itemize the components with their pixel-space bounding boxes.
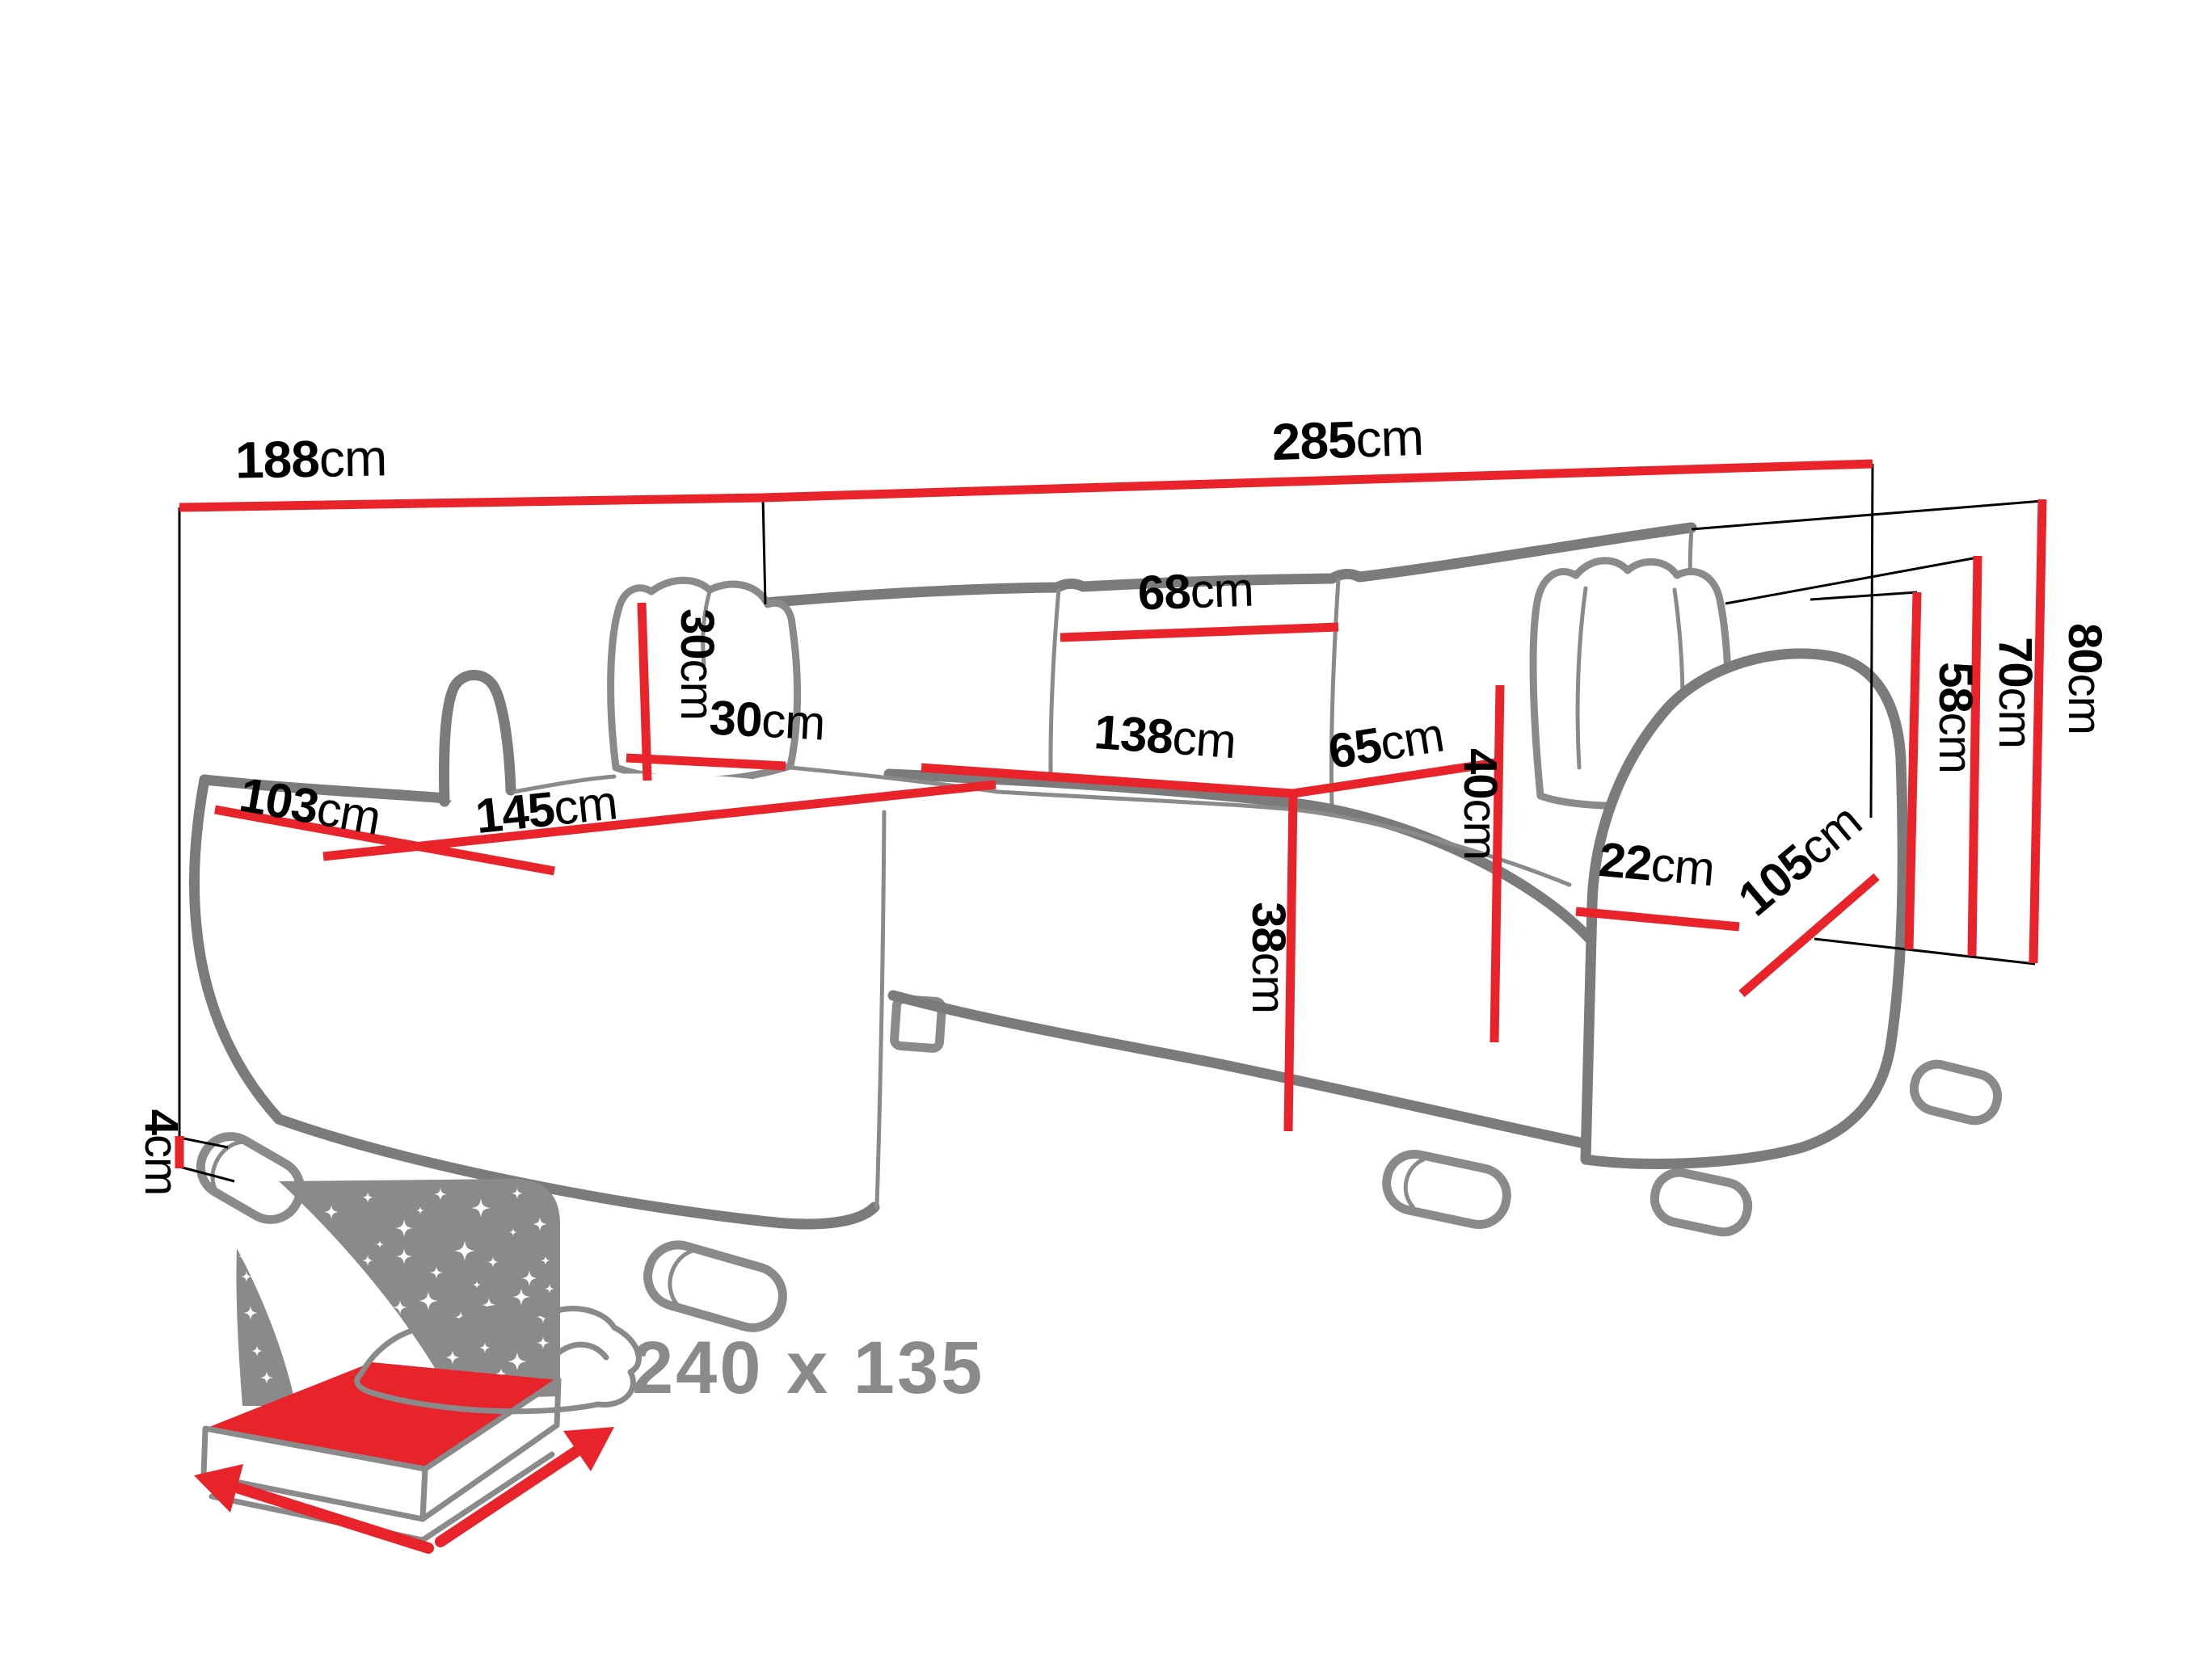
label-68: 68cm	[1137, 562, 1254, 621]
label-70: 70cm	[1989, 637, 2041, 748]
dim-line-30v	[642, 603, 647, 781]
label-4: 4cm	[135, 1109, 187, 1196]
dim-line-40	[1494, 685, 1500, 1042]
dim-line-188	[179, 498, 763, 507]
ext-mid-vertical	[763, 498, 765, 604]
dimension-diagram: 188cm 285cm 30cm 30cm 103cm 145cm 68cm 4…	[0, 0, 2212, 1658]
sofa-leg-seat-right	[1381, 1149, 1511, 1230]
sleeping-size-label: 240 x 135	[632, 1327, 984, 1409]
label-40: 40cm	[1454, 748, 1506, 860]
chaise-fill	[194, 773, 885, 1224]
label-30h: 30cm	[708, 690, 826, 750]
sofa-diagram-canvas: 188cm 285cm 30cm 30cm 103cm 145cm 68cm 4…	[0, 0, 2212, 1658]
label-38: 38cm	[1242, 902, 1295, 1013]
sofa-leg-chaise-left	[190, 1126, 311, 1230]
chaise-arch-armrest	[445, 675, 512, 802]
sofa-leg-armrest-right	[1910, 1059, 2003, 1125]
label-58: 58cm	[1929, 662, 1982, 773]
label-188: 188cm	[234, 428, 386, 489]
ext-height-80	[1692, 501, 2042, 529]
label-285: 285cm	[1270, 408, 1423, 471]
duvet-fold-2	[558, 1344, 606, 1357]
label-80: 80cm	[2058, 623, 2111, 734]
dim-line-58	[1909, 592, 1917, 949]
label-22: 22cm	[1597, 832, 1717, 896]
ext-right-vertical	[1871, 464, 1873, 818]
ext-height-58	[1810, 592, 1917, 600]
curtain-crescent	[236, 1248, 296, 1406]
arrow-length-line	[239, 1488, 428, 1548]
sofa-leg-chaise-right	[641, 1238, 790, 1335]
label-138: 138cm	[1093, 705, 1237, 768]
sofa-leg-armrest-front	[1650, 1168, 1752, 1237]
